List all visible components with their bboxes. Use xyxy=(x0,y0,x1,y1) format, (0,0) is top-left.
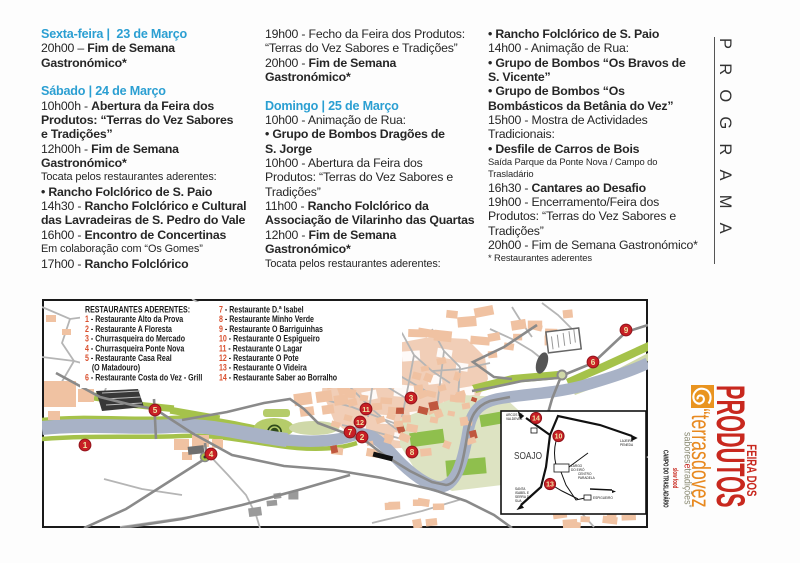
svg-text:PARADELA: PARADELA xyxy=(578,476,596,480)
svg-text:6 - Restaurante Costa do Vez -: 6 - Restaurante Costa do Vez - Grill xyxy=(85,373,202,383)
svg-text:8 - Restaurante Minho Verde: 8 - Restaurante Minho Verde xyxy=(219,314,314,324)
svg-text:4 - Churrasqueira Ponte Nova: 4 - Churrasqueira Ponte Nova xyxy=(85,343,185,353)
svg-text:14: 14 xyxy=(532,416,540,423)
svg-text:7: 7 xyxy=(348,428,353,437)
svg-text:11 - Restaurante O Lagar: 11 - Restaurante O Lagar xyxy=(219,343,303,353)
svg-text:3: 3 xyxy=(409,394,414,403)
svg-text:1 - Restaurante Alto da Prova: 1 - Restaurante Alto da Prova xyxy=(85,314,184,324)
svg-text:CAMPO DO TRASLADÁRIO: CAMPO DO TRASLADÁRIO xyxy=(661,450,670,508)
svg-text:9: 9 xyxy=(624,326,629,335)
svg-text:12: 12 xyxy=(356,418,364,427)
svg-text:PENEDA: PENEDA xyxy=(620,443,634,447)
svg-text:14 - Restaurante Saber ao Borr: 14 - Restaurante Saber ao Borralho xyxy=(219,373,337,383)
svg-text:2 - Restaurante A Floresta: 2 - Restaurante A Floresta xyxy=(85,324,172,334)
svg-text:10: 10 xyxy=(555,434,563,441)
svg-text:5 - Restaurante Casa Real: 5 - Restaurante Casa Real xyxy=(85,353,172,363)
svg-text:10 - Restaurante O Espigueiro: 10 - Restaurante O Espigueiro xyxy=(219,334,320,344)
svg-text:13 - Restaurante O Videira: 13 - Restaurante O Videira xyxy=(219,363,307,373)
svg-text:slow food: slow food xyxy=(671,468,678,489)
svg-text:SOAJO: SOAJO xyxy=(514,450,542,462)
svg-text:1: 1 xyxy=(83,441,88,450)
svg-text:SUA: SUA xyxy=(515,499,522,503)
svg-text:6: 6 xyxy=(591,358,596,367)
svg-text:4: 4 xyxy=(209,450,214,459)
svg-text:5: 5 xyxy=(153,406,158,415)
svg-text:ESPIGUEIRO: ESPIGUEIRO xyxy=(593,496,613,500)
svg-text:saboresetradições”: saboresetradições” xyxy=(682,432,693,508)
svg-text:11: 11 xyxy=(362,405,370,414)
svg-text:3 - Churrasqueira do Mercado: 3 - Churrasqueira do Mercado xyxy=(85,334,185,344)
svg-text:VALDEVEZ: VALDEVEZ xyxy=(506,417,522,421)
svg-text:RESTAURANTES ADERENTES:: RESTAURANTES ADERENTES: xyxy=(85,305,190,315)
svg-text:8: 8 xyxy=(410,448,415,457)
svg-text:13: 13 xyxy=(546,482,554,489)
svg-text:12 - Restaurante O Pote: 12 - Restaurante O Pote xyxy=(219,353,299,363)
svg-text:(O Matadouro): (O Matadouro) xyxy=(92,363,140,373)
svg-text:9 - Restaurante O Barriguinhas: 9 - Restaurante O Barriguinhas xyxy=(219,324,323,334)
svg-text:7 - Restaurante D.ª Isabel: 7 - Restaurante D.ª Isabel xyxy=(219,305,304,315)
svg-text:2: 2 xyxy=(360,433,365,442)
